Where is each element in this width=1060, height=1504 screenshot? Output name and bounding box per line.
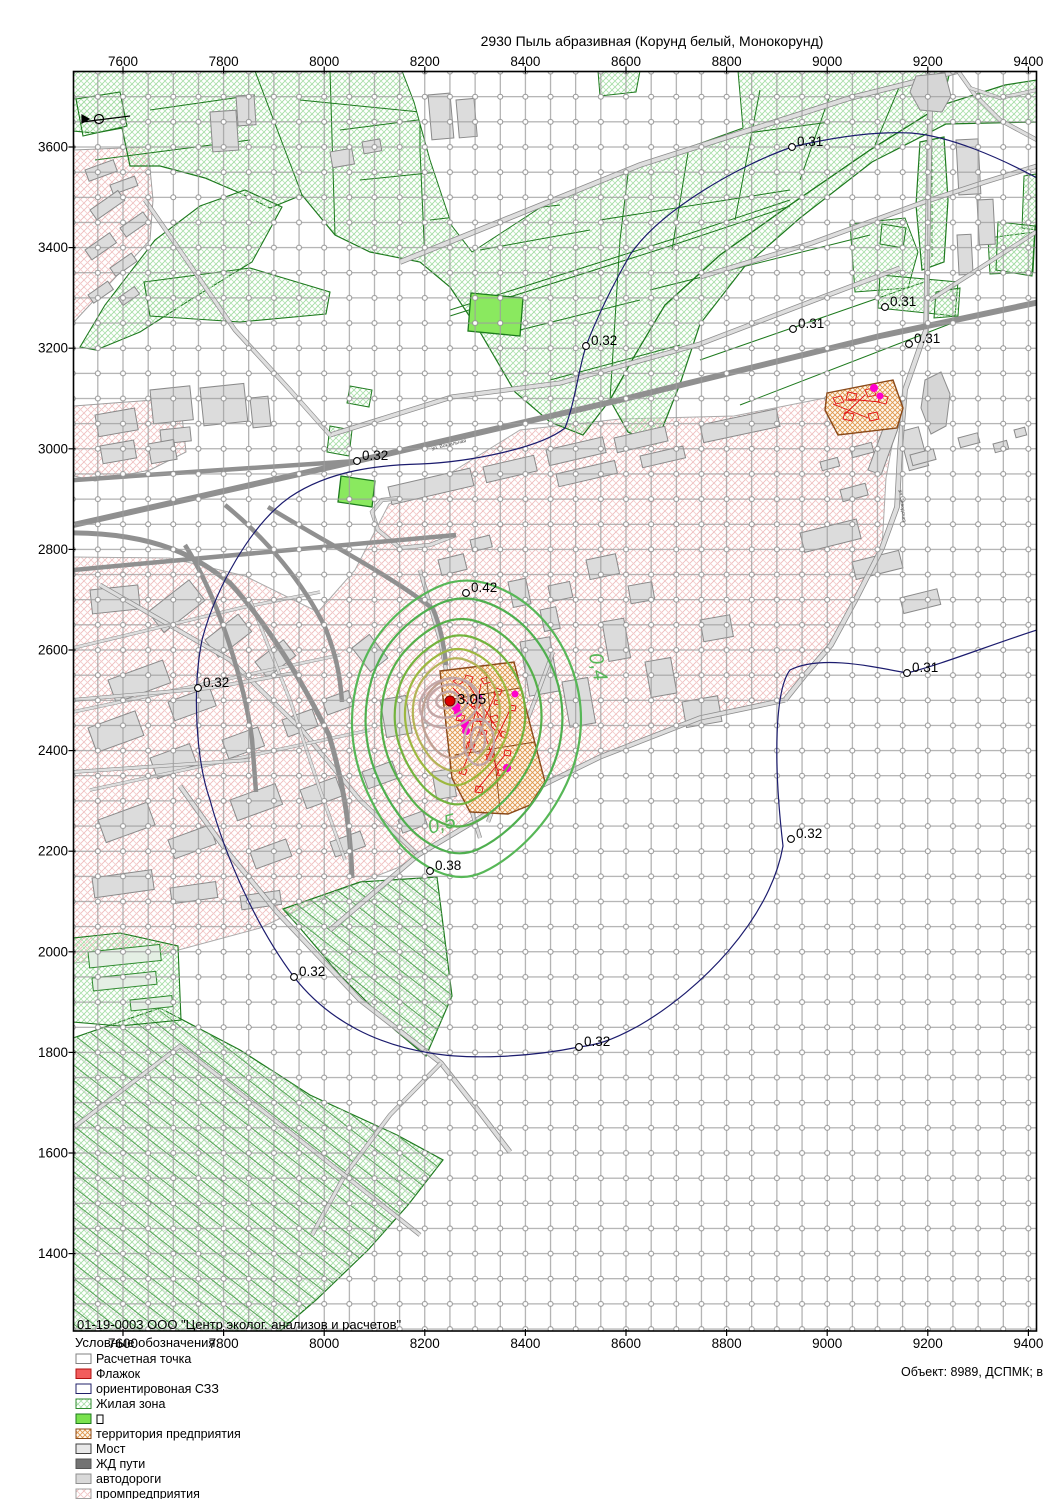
svg-text:0.31: 0.31 (797, 134, 823, 149)
svg-text:2200: 2200 (38, 844, 68, 859)
svg-text:8800: 8800 (712, 54, 742, 69)
svg-text:Флажок: Флажок (96, 1367, 141, 1381)
svg-text:автодороги: автодороги (96, 1472, 161, 1486)
svg-text:0.32: 0.32 (584, 1034, 610, 1049)
svg-text:9400: 9400 (1013, 1336, 1043, 1351)
svg-text:0.32: 0.32 (362, 448, 388, 463)
svg-text:2600: 2600 (38, 643, 68, 658)
svg-text:9200: 9200 (913, 54, 943, 69)
svg-text:территория предприятия: территория предприятия (96, 1427, 241, 1441)
svg-text:3000: 3000 (38, 441, 68, 456)
svg-text:0.32: 0.32 (299, 964, 325, 979)
svg-text:8200: 8200 (410, 1336, 440, 1351)
svg-text:Объект: 8989, ДСПМК; в: Объект: 8989, ДСПМК; в (901, 1365, 1043, 1379)
svg-text:8000: 8000 (309, 1336, 339, 1351)
svg-text:0.31: 0.31 (912, 660, 938, 675)
svg-text:ориентировоная СЗЗ: ориентировоная СЗЗ (96, 1382, 219, 1396)
svg-text:9200: 9200 (913, 1336, 943, 1351)
svg-text:0.32: 0.32 (203, 675, 229, 690)
svg-text:0.32: 0.32 (591, 333, 617, 348)
svg-text:8600: 8600 (611, 1336, 641, 1351)
svg-text:2400: 2400 (38, 743, 68, 758)
svg-text:9000: 9000 (812, 1336, 842, 1351)
svg-text:7800: 7800 (209, 54, 239, 69)
svg-text:Условные обозначения:: Условные обозначения: (75, 1335, 219, 1350)
svg-text:3.05: 3.05 (457, 691, 486, 708)
svg-text:2000: 2000 (38, 944, 68, 959)
svg-text:8400: 8400 (510, 54, 540, 69)
svg-text:3400: 3400 (38, 240, 68, 255)
svg-text:Расчетная точка: Расчетная точка (96, 1352, 191, 1366)
svg-text:8600: 8600 (611, 54, 641, 69)
svg-text:1600: 1600 (38, 1146, 68, 1161)
svg-text:1800: 1800 (38, 1045, 68, 1060)
svg-text:0.31: 0.31 (914, 331, 940, 346)
svg-text:01-19-0003 ООО "Центр эколог.: 01-19-0003 ООО "Центр эколог. анализов и… (77, 1317, 401, 1332)
svg-text:3200: 3200 (38, 341, 68, 356)
svg-text:0.31: 0.31 (798, 316, 824, 331)
svg-text:8200: 8200 (410, 54, 440, 69)
svg-text:7600: 7600 (108, 54, 138, 69)
svg-text:9000: 9000 (812, 54, 842, 69)
svg-text:8400: 8400 (510, 1336, 540, 1351)
svg-text:9400: 9400 (1013, 54, 1043, 69)
svg-text:Мост: Мост (96, 1442, 126, 1456)
svg-text:0.38: 0.38 (435, 858, 461, 873)
svg-text:0.42: 0.42 (471, 580, 497, 595)
svg-text:промпредприятия: промпредприятия (96, 1487, 200, 1499)
svg-text:8000: 8000 (309, 54, 339, 69)
svg-text:0.32: 0.32 (796, 826, 822, 841)
svg-text:1400: 1400 (38, 1246, 68, 1261)
svg-text:2800: 2800 (38, 542, 68, 557)
svg-text:ЖД пути: ЖД пути (96, 1457, 145, 1471)
svg-text:8800: 8800 (712, 1336, 742, 1351)
svg-text:2930 Пыль абразивная (Корунд б: 2930 Пыль абразивная (Корунд белый, Моно… (481, 33, 824, 49)
svg-text:3600: 3600 (38, 140, 68, 155)
svg-text:0.31: 0.31 (890, 294, 916, 309)
svg-text:Жилая зона: Жилая зона (96, 1397, 165, 1411)
